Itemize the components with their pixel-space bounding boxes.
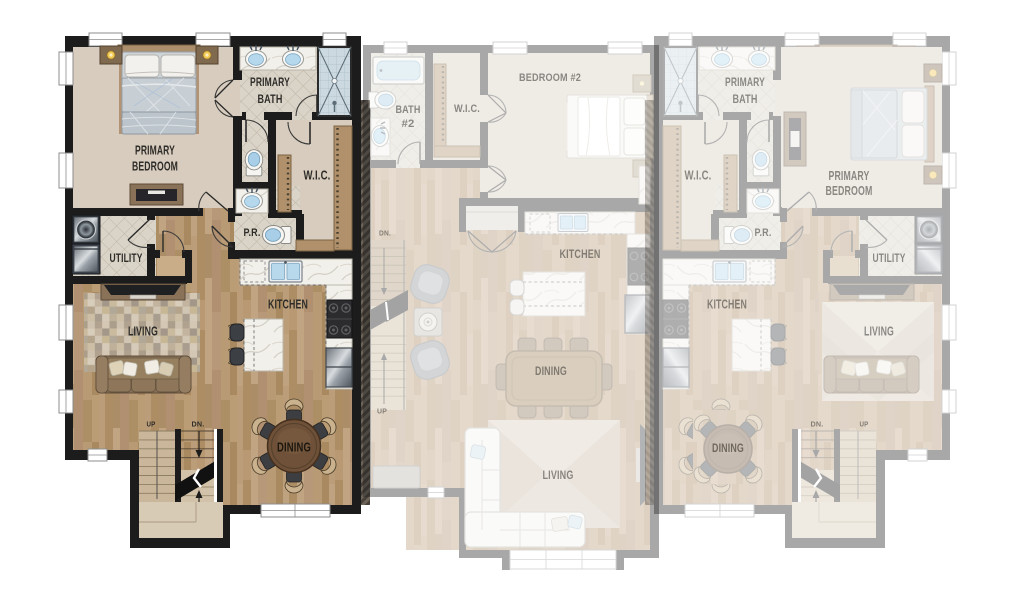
- svg-text:LIVING: LIVING: [543, 468, 574, 482]
- svg-text:BATH: BATH: [396, 104, 421, 116]
- svg-text:UTILITY: UTILITY: [873, 253, 906, 265]
- svg-text:W.I.C.: W.I.C.: [304, 168, 331, 183]
- svg-text:PRIMARY: PRIMARY: [250, 75, 290, 89]
- svg-text:UP: UP: [377, 409, 387, 416]
- svg-text:W.I.C.: W.I.C.: [454, 103, 480, 115]
- svg-text:DINING: DINING: [712, 441, 744, 455]
- svg-text:BATH: BATH: [733, 92, 758, 106]
- svg-text:PRIMARY: PRIMARY: [829, 169, 870, 183]
- svg-text:KITCHEN: KITCHEN: [707, 297, 747, 312]
- svg-text:UTILITY: UTILITY: [110, 253, 143, 265]
- svg-text:BEDROOM #2: BEDROOM #2: [519, 72, 581, 84]
- svg-text:DN.: DN.: [379, 231, 391, 238]
- svg-text:PRIMARY: PRIMARY: [725, 75, 765, 89]
- svg-text:LIVING: LIVING: [864, 324, 894, 339]
- svg-text:P.R.: P.R.: [244, 227, 261, 239]
- svg-text:DINING: DINING: [277, 440, 311, 455]
- svg-text:BEDROOM: BEDROOM: [132, 159, 178, 174]
- svg-text:DN.: DN.: [811, 422, 824, 429]
- svg-text:W.I.C.: W.I.C.: [685, 168, 712, 183]
- svg-text:P.R.: P.R.: [755, 227, 772, 239]
- svg-text:LIVING: LIVING: [128, 324, 158, 339]
- svg-text:DINING: DINING: [535, 364, 567, 378]
- svg-text:KITCHEN: KITCHEN: [560, 247, 601, 261]
- svg-text:KITCHEN: KITCHEN: [268, 297, 308, 312]
- svg-text:BEDROOM: BEDROOM: [826, 184, 873, 198]
- svg-text:PRIMARY: PRIMARY: [135, 143, 175, 158]
- svg-text:#2: #2: [402, 118, 415, 130]
- svg-text:BATH: BATH: [258, 92, 283, 106]
- svg-text:UP: UP: [147, 422, 156, 429]
- svg-text:DN.: DN.: [192, 422, 205, 429]
- svg-text:UP: UP: [860, 422, 869, 429]
